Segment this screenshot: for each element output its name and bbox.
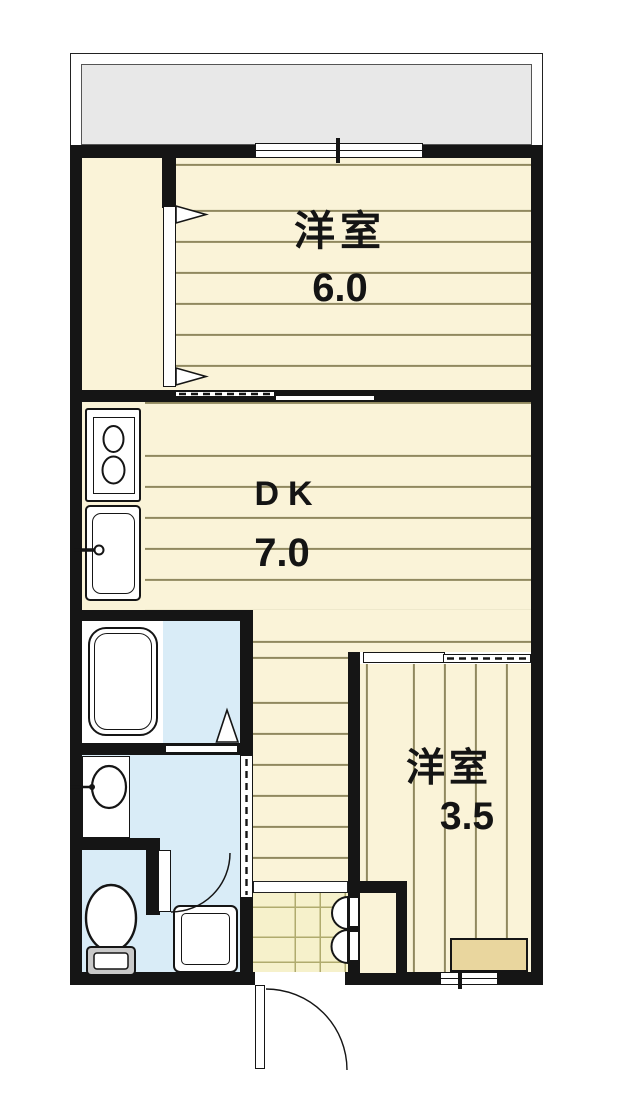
shoe-cabinet-door-lower [349,931,359,961]
bedroom35-label: 洋室 [383,749,515,788]
shoe-cabinet-door-upper [349,897,359,927]
top-window-tick [336,138,340,163]
toilet-door-leaf [158,850,171,912]
bedroom6-size: 6.0 [270,268,410,308]
bedroom6-dk-door-far-panel [175,391,275,397]
dk-floor-mid [253,610,531,652]
bedroom35-door-near-panel [363,652,445,663]
bottom-window [440,972,498,985]
bathtub-inner [94,633,152,730]
entrance-door-arc [266,989,347,1070]
bathroom-wet-floor [163,621,240,743]
entrance-opening [255,972,345,985]
wall-closet35-top [348,881,407,893]
wall-closet6-stub [162,158,176,208]
bedroom6-label: 洋室 [270,211,410,252]
washbasin-counter [82,756,130,838]
balcony-floor [81,64,532,145]
dk-label: DK [233,477,343,511]
wall-hall-left-lower [240,896,253,973]
bottom-window-rail [441,978,497,980]
entrance-tile [253,893,348,973]
wall-closet35-right [396,893,407,973]
closet-bedroom6 [82,158,163,390]
gas-stove-top [93,417,135,494]
washing-machine-pan-inner [181,913,230,965]
wall-left [70,145,82,985]
bedroom35-door-far-panel [443,654,531,663]
bedroom6-dk-door-near-panel [275,395,375,401]
closet6-sliding-door [163,206,176,387]
hallway-floor [253,652,348,883]
entrance-door-leaf [255,985,265,1069]
bedroom35-size: 3.5 [402,797,532,836]
dk-size: 7.0 [222,533,342,573]
closet-bedroom35 [360,893,396,973]
wall-bedroom35-left [348,652,360,881]
kitchen-sink-basin [92,513,135,594]
wall-right [531,145,543,985]
wall-bathroom-right [240,610,253,755]
entrance-step [253,881,348,893]
bathroom-threshold [165,745,238,753]
wall-bathroom-top [70,610,252,621]
floor-plan: 洋室 6.0 DK 7.0 洋室 3.5 [0,0,640,1096]
washroom-sliding-door [240,755,253,898]
window-counter [450,938,528,972]
